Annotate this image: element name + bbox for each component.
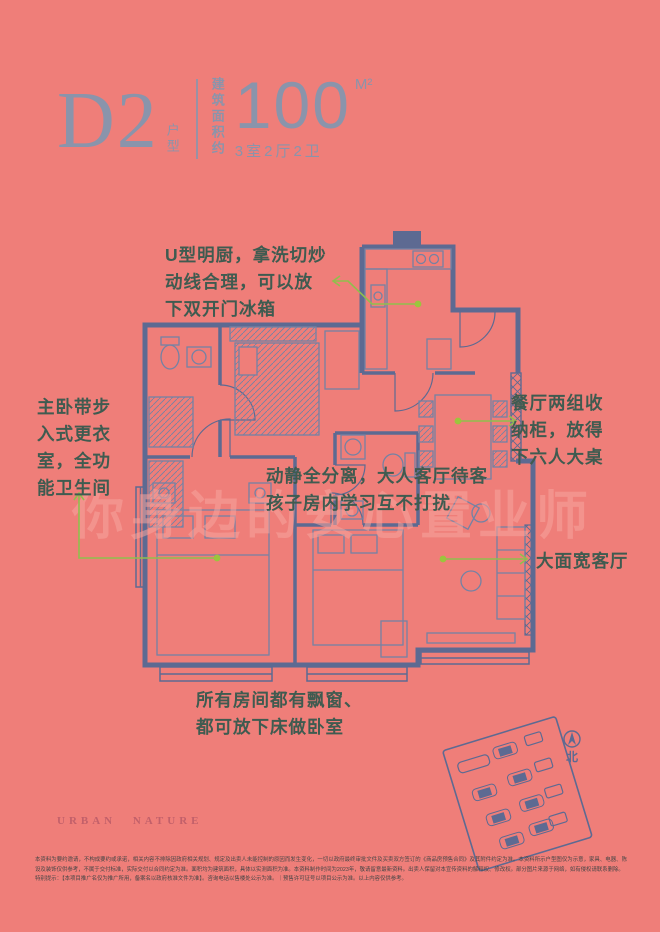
compass-icon	[564, 731, 580, 747]
annotation-master-bedroom: 主卧带步 入式更衣 室，全功 能卫生间	[37, 394, 111, 503]
brand-logo-text: URBAN NATURE	[57, 815, 203, 827]
annotation-living: 大面宽客厅	[536, 548, 629, 575]
annotation-dining: 餐厅两组收 纳柜，放得 下六人大桌	[511, 390, 604, 471]
annotation-separation: 动静全分离，大人客厅待客 孩子房内学习互不打扰	[266, 463, 488, 517]
annotation-kitchen: U型明厨，拿洗切炒 动线合理，可以放 下双开门冰箱	[165, 242, 327, 323]
disclaimer-text: 本资料为要约邀请，不构成要约或承诺，相关内容不排除因政府相关规划、规定及出卖人未…	[35, 856, 627, 885]
leader-dots	[214, 301, 462, 563]
compass-north-label: 北	[566, 748, 578, 765]
annotation-baywindow: 所有房间都有飘窗、 都可放下床做卧室	[196, 687, 363, 741]
